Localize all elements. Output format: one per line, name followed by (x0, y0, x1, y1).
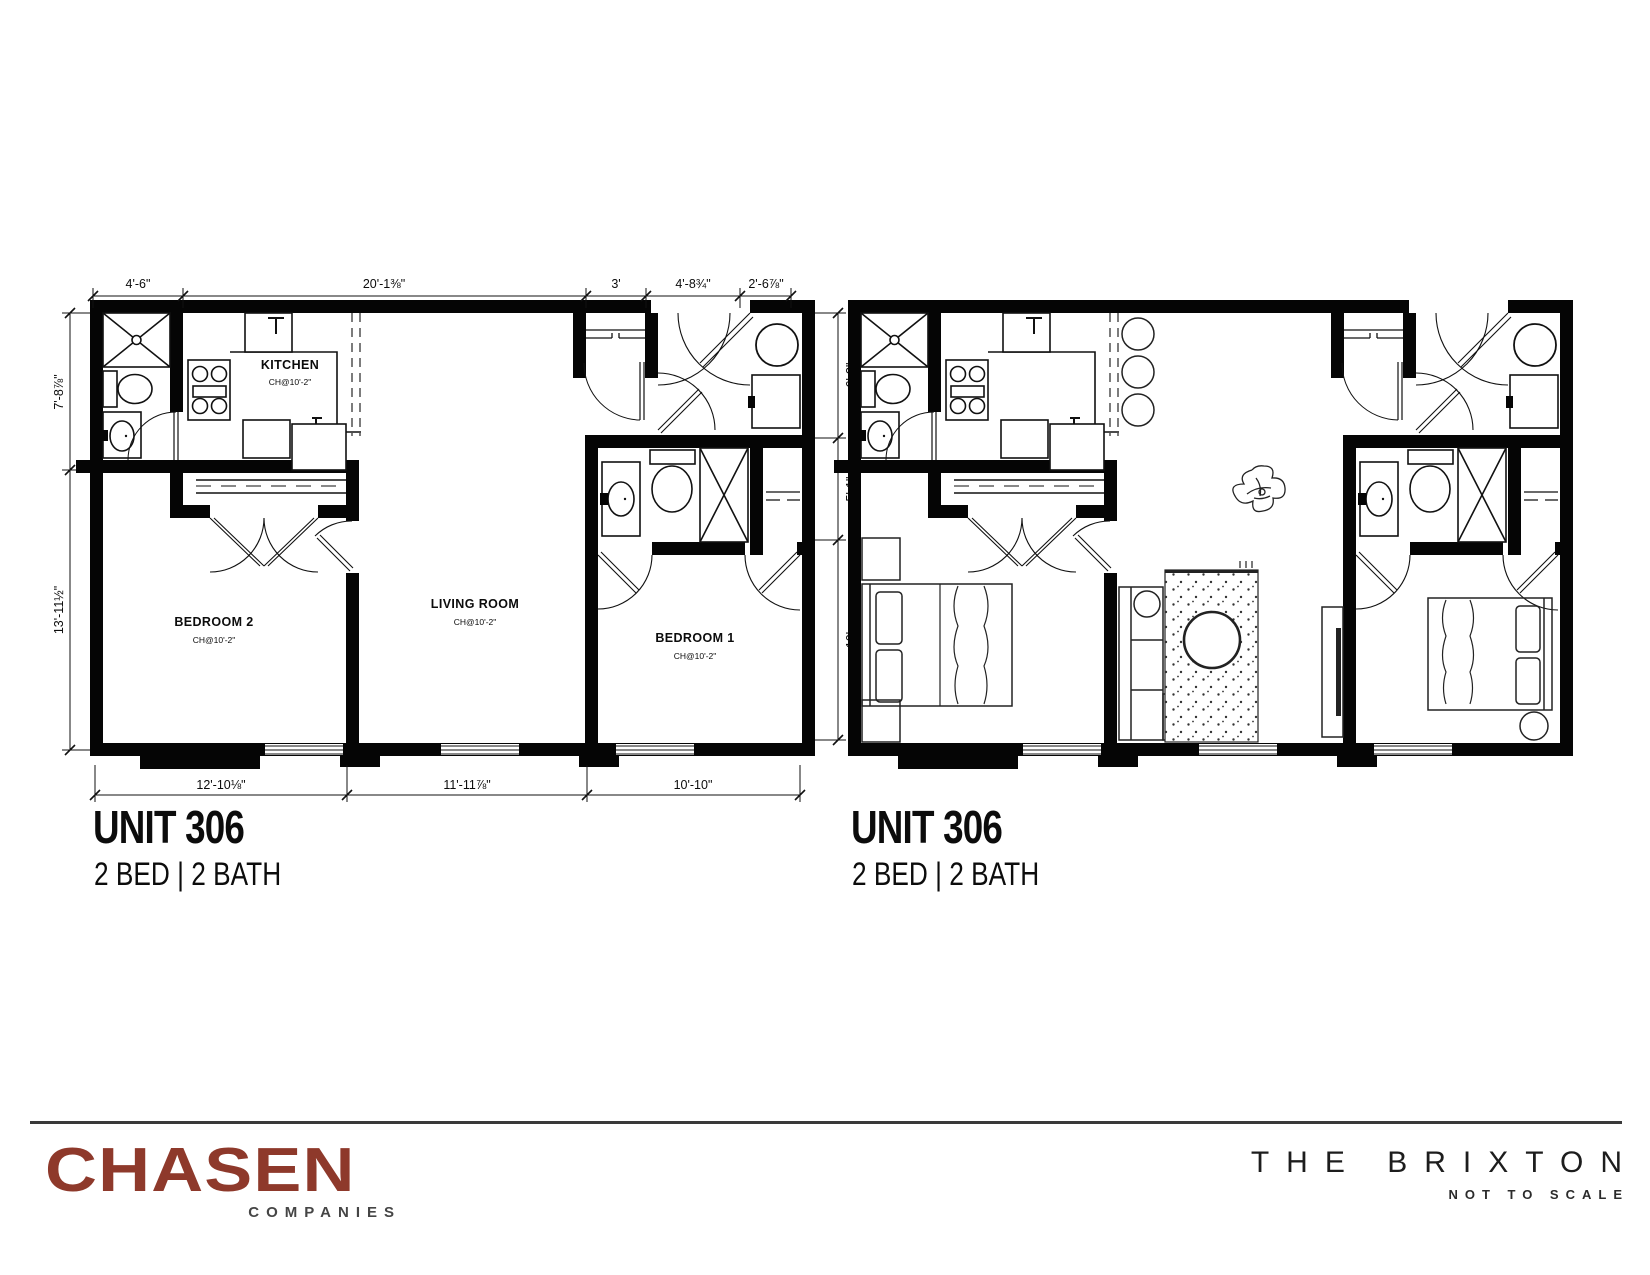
dim-bottom-2: 10'-10" (674, 778, 713, 792)
footer-divider (30, 1121, 1622, 1124)
dim-top-1: 20'-1⅜" (363, 277, 405, 291)
brand-name: THE BRIXTON (1251, 1146, 1639, 1180)
dimensioned-floor-plan: 4'-6" 20'-1⅜" 3' 4'-8¾" 2'-6⅞" 7'-8⅞" 13… (52, 277, 858, 802)
dim-bottom-1: 11'-11⅞" (443, 778, 490, 792)
furnished-floor-plan (834, 300, 1573, 769)
right-plan-subtitle: 2 BED | 2 BATH (852, 856, 1039, 893)
brand-block: THE BRIXTON NOT TO SCALE (1251, 1146, 1622, 1202)
chasen-companies-text: COMPANIES (45, 1204, 401, 1221)
dim-top-0: 4'-6" (126, 277, 151, 291)
right-plan-title: UNIT 306 (851, 800, 1002, 854)
left-plan-subtitle: 2 BED | 2 BATH (94, 856, 281, 893)
scale-note: NOT TO SCALE (1251, 1187, 1629, 1202)
dim-left-1: 13'-11½" (52, 586, 66, 634)
dim-left-0: 7'-8⅞" (52, 374, 66, 409)
dim-bottom-0: 12'-10⅛" (196, 778, 245, 792)
floor-plan-canvas: 4'-6" 20'-1⅜" 3' 4'-8¾" 2'-6⅞" 7'-8⅞" 13… (0, 0, 1650, 1275)
dim-top-4: 2'-6⅞" (748, 277, 783, 291)
room-ceiling-kitchen: CH@10'-2" (269, 377, 312, 387)
dim-top-3: 4'-8¾" (675, 277, 710, 291)
chasen-logo: CHASEN COMPANIES (45, 1140, 405, 1221)
room-ceiling-bedroom1: CH@10'-2" (674, 651, 717, 661)
room-label-bedroom1: BEDROOM 1 (655, 631, 734, 645)
chasen-logo-text: CHASEN (45, 1140, 356, 1202)
room-label-kitchen: KITCHEN (261, 358, 319, 372)
room-label-living: LIVING ROOM (431, 597, 519, 611)
left-plan-title: UNIT 306 (93, 800, 244, 854)
floorplan-sheet: 4'-6" 20'-1⅜" 3' 4'-8¾" 2'-6⅞" 7'-8⅞" 13… (0, 0, 1650, 1275)
room-ceiling-living: CH@10'-2" (454, 617, 497, 627)
room-ceiling-bedroom2: CH@10'-2" (193, 635, 236, 645)
dim-top-2: 3' (611, 277, 620, 291)
room-label-bedroom2: BEDROOM 2 (174, 615, 253, 629)
